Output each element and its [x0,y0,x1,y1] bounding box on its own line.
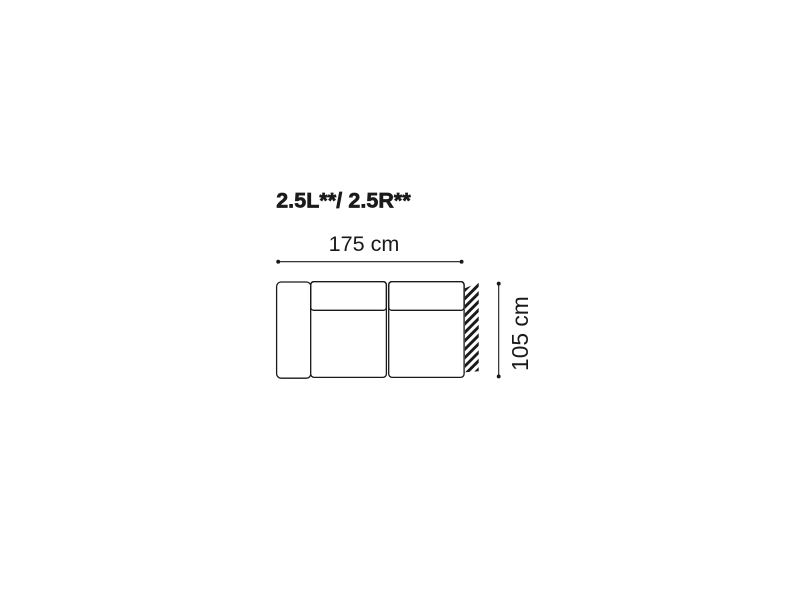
svg-text:105 cm: 105 cm [507,296,533,371]
svg-text:175 cm: 175 cm [329,231,400,256]
svg-text:2.5L**/ 2.5R**: 2.5L**/ 2.5R** [276,188,411,212]
